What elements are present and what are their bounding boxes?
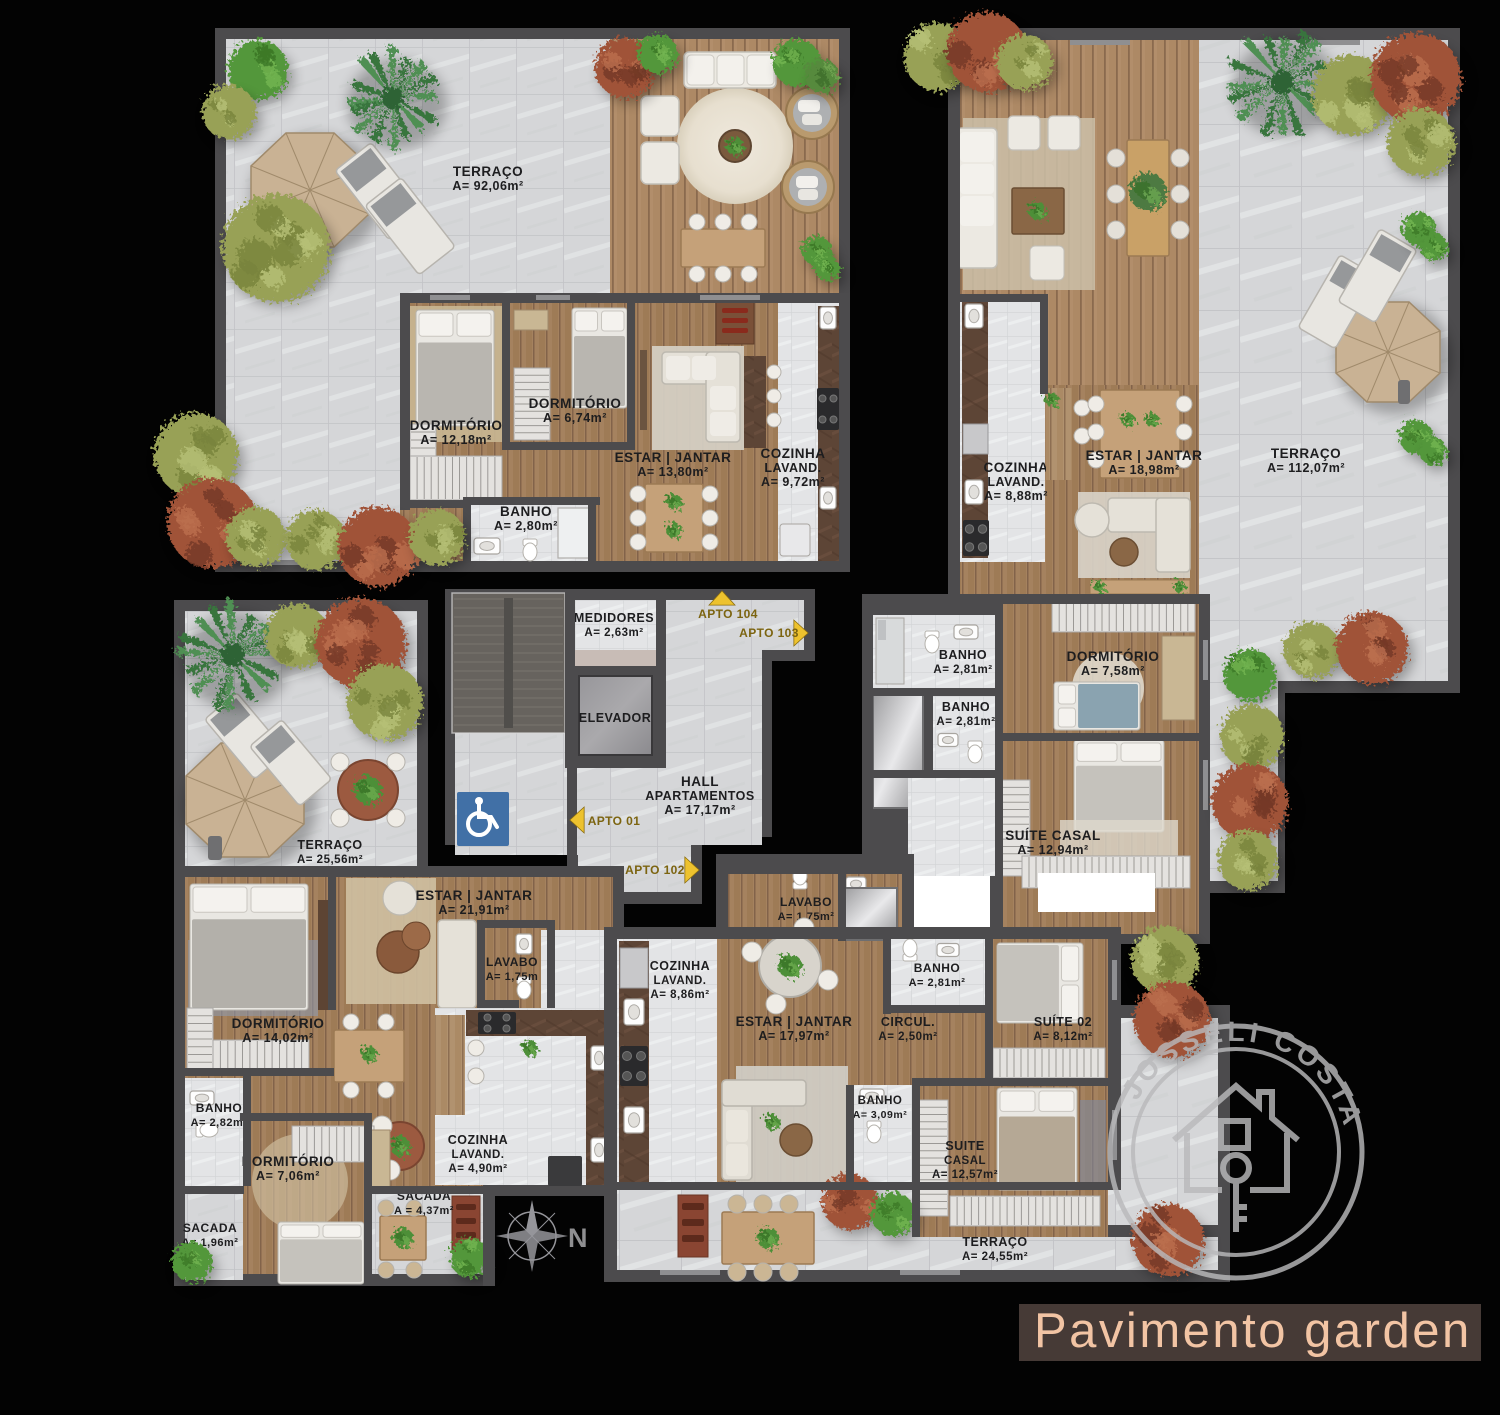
svg-text:LAVAND.: LAVAND. [452, 1149, 505, 1161]
svg-text:BANHO: BANHO [500, 504, 552, 519]
svg-text:BANHO: BANHO [939, 648, 987, 662]
svg-text:A= 2,63m²: A= 2,63m² [584, 627, 643, 639]
svg-text:ELEVADOR: ELEVADOR [579, 711, 652, 725]
svg-text:DORMITÓRIO: DORMITÓRIO [242, 1154, 335, 1169]
svg-text:CASAL: CASAL [944, 1155, 986, 1167]
svg-text:A= 2,82m²: A= 2,82m² [191, 1117, 248, 1129]
svg-text:BANHO: BANHO [196, 1101, 243, 1115]
svg-text:TERRAÇO: TERRAÇO [1271, 446, 1341, 461]
svg-text:SUÍTE 02: SUÍTE 02 [1034, 1014, 1092, 1029]
svg-text:LAVABO: LAVABO [486, 955, 538, 969]
svg-text:A= 2,81m²: A= 2,81m² [936, 716, 995, 728]
svg-text:A= 92,06m²: A= 92,06m² [452, 179, 523, 193]
svg-text:TERRAÇO: TERRAÇO [962, 1235, 1027, 1249]
svg-text:LAVAND.: LAVAND. [654, 975, 707, 987]
svg-text:DORMITÓRIO: DORMITÓRIO [529, 396, 622, 411]
svg-text:A= 21,91m²: A= 21,91m² [438, 903, 509, 917]
svg-text:LAVABO: LAVABO [780, 895, 832, 909]
svg-text:BANHO: BANHO [914, 961, 961, 975]
svg-text:COZINHA: COZINHA [650, 959, 710, 973]
svg-text:A= 112,07m²: A= 112,07m² [1267, 461, 1345, 475]
svg-text:APTO 103: APTO 103 [739, 626, 799, 640]
svg-text:A= 12,57m²: A= 12,57m² [932, 1169, 998, 1181]
svg-text:DORMITÓRIO: DORMITÓRIO [410, 418, 503, 433]
svg-text:A= 24,55m²: A= 24,55m² [962, 1251, 1028, 1263]
svg-text:A= 7,06m²: A= 7,06m² [256, 1169, 320, 1183]
svg-text:TERRAÇO: TERRAÇO [453, 164, 523, 179]
svg-text:COZINHA: COZINHA [448, 1133, 508, 1147]
svg-text:BANHO: BANHO [942, 700, 990, 714]
svg-text:A= 4,90m²: A= 4,90m² [448, 1163, 507, 1175]
svg-text:A= 12,94m²: A= 12,94m² [1017, 843, 1088, 857]
svg-text:APTO 102: APTO 102 [625, 863, 685, 877]
svg-text:DORMITÓRIO: DORMITÓRIO [1067, 649, 1160, 664]
svg-text:N: N [568, 1223, 588, 1253]
svg-text:A= 8,88m²: A= 8,88m² [984, 489, 1048, 503]
svg-text:A= 8,86m²: A= 8,86m² [650, 989, 709, 1001]
svg-text:A= 12,18m²: A= 12,18m² [420, 433, 491, 447]
svg-text:A= 17,17m²: A= 17,17m² [664, 803, 735, 817]
svg-text:ESTAR | JANTAR: ESTAR | JANTAR [615, 450, 732, 465]
svg-text:A= 25,56m²: A= 25,56m² [297, 854, 363, 866]
svg-text:A= 8,12m²: A= 8,12m² [1033, 1031, 1092, 1043]
svg-text:APTO 01: APTO 01 [588, 814, 641, 828]
svg-text:COZINHA: COZINHA [761, 446, 826, 461]
svg-text:A= 2,81m²: A= 2,81m² [933, 664, 992, 676]
svg-text:A= 2,50m²: A= 2,50m² [878, 1031, 937, 1043]
svg-text:MEDIDORES: MEDIDORES [574, 611, 654, 625]
svg-text:A= 14,02m²: A= 14,02m² [242, 1031, 313, 1045]
svg-text:A= 7,58m²: A= 7,58m² [1081, 664, 1145, 678]
svg-text:HALL: HALL [681, 774, 719, 789]
svg-text:A= 3,09m²: A= 3,09m² [853, 1109, 907, 1121]
svg-text:A= 2,80m²: A= 2,80m² [494, 519, 558, 533]
svg-text:SUÍTE CASAL: SUÍTE CASAL [1005, 828, 1101, 843]
svg-text:TERRAÇO: TERRAÇO [297, 838, 362, 852]
svg-text:APARTAMENTOS: APARTAMENTOS [645, 789, 754, 803]
svg-text:ESTAR | JANTAR: ESTAR | JANTAR [1086, 448, 1203, 463]
svg-text:LAVAND.: LAVAND. [764, 461, 821, 475]
svg-text:COZINHA: COZINHA [984, 460, 1049, 475]
svg-text:A= 6,74m²: A= 6,74m² [543, 411, 607, 425]
svg-text:DORMITÓRIO: DORMITÓRIO [232, 1016, 325, 1031]
svg-text:A= 13,80m²: A= 13,80m² [637, 465, 708, 479]
svg-text:A = 4,37m²: A = 4,37m² [394, 1205, 454, 1217]
svg-text:SUITE: SUITE [945, 1139, 984, 1153]
svg-text:APTO 104: APTO 104 [698, 607, 758, 621]
svg-text:A= 2,81m²: A= 2,81m² [909, 977, 966, 989]
svg-text:LAVAND.: LAVAND. [987, 475, 1044, 489]
svg-text:Pavimento garden: Pavimento garden [1034, 1304, 1472, 1358]
svg-text:A= 18,98m²: A= 18,98m² [1108, 463, 1179, 477]
svg-text:SACADA: SACADA [183, 1221, 237, 1235]
svg-text:ESTAR | JANTAR: ESTAR | JANTAR [736, 1014, 853, 1029]
svg-text:A= 17,97m²: A= 17,97m² [758, 1029, 829, 1043]
svg-text:CIRCUL.: CIRCUL. [881, 1015, 935, 1029]
svg-text:BANHO: BANHO [858, 1095, 903, 1107]
svg-text:A= 9,72m²: A= 9,72m² [761, 475, 825, 489]
svg-text:A= 1,75m: A= 1,75m [486, 971, 539, 983]
svg-text:ESTAR | JANTAR: ESTAR | JANTAR [416, 888, 533, 903]
